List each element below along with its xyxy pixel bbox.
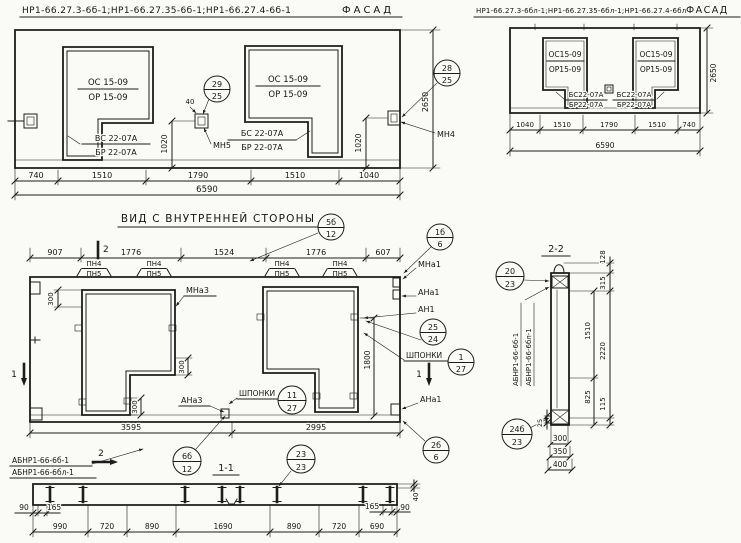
svg-text:27: 27	[456, 365, 466, 374]
window-opening-left	[82, 290, 175, 415]
dim-label: 990	[53, 522, 68, 531]
dim-label: 2650	[709, 63, 718, 82]
svg-text:ПН4: ПН4	[87, 260, 103, 268]
facade-left-view-label: ФАСАД	[342, 5, 394, 16]
anchor-label: МН4	[437, 130, 455, 139]
svg-text:5б: 5б	[326, 218, 336, 227]
svg-text:27: 27	[287, 404, 297, 413]
dim-label: 1040	[359, 171, 379, 180]
svg-text:2б: 2б	[431, 441, 441, 450]
dim-label: 128	[599, 250, 607, 263]
panel-cross-section	[33, 484, 397, 505]
sill-mark: БР22-07А	[617, 101, 651, 109]
dim-label: 315	[599, 276, 607, 289]
window-mark: ОР15-09	[640, 65, 672, 74]
svg-text:25: 25	[442, 76, 452, 85]
dim-label: 1510	[584, 322, 592, 340]
dim-label: 907	[47, 248, 62, 257]
dim-label: 890	[145, 522, 160, 531]
facade-right-title: НР1-66.27.3-6бл-1;НР1-66.27.35-6бл-1;НР1…	[476, 7, 694, 15]
anchor-plate-mid	[195, 114, 208, 128]
dim-label: 165	[47, 503, 62, 512]
dim-label: 720	[100, 522, 115, 531]
dim-label: 890	[287, 522, 302, 531]
callout-balloon: 1 27	[448, 349, 474, 375]
window-opening-left	[63, 47, 153, 160]
window-mark: ОР 15-09	[268, 90, 307, 100]
item-label: АБНР1-66-6бл-1	[12, 468, 74, 477]
dim-label: 90	[400, 503, 410, 512]
dim-label: 1510	[92, 171, 112, 180]
svg-text:ПН4: ПН4	[275, 260, 291, 268]
svg-text:6б: 6б	[182, 452, 192, 461]
callout-balloon: 25 24	[366, 319, 446, 345]
svg-text:23: 23	[512, 438, 522, 447]
dim-total-label: 6590	[196, 185, 218, 195]
dim-label: 90	[19, 503, 29, 512]
svg-text:20: 20	[505, 267, 515, 276]
dim-label: 300	[47, 292, 55, 305]
dim-label: 740	[28, 171, 43, 180]
svg-text:1: 1	[458, 353, 463, 362]
svg-text:2: 2	[98, 449, 104, 459]
dim-label: 300	[131, 400, 139, 413]
dim-label: 115	[599, 397, 607, 410]
anchor-plate-mid	[605, 85, 613, 93]
callout-balloon: 29 25	[203, 76, 230, 114]
anchor-label: МНа1	[418, 260, 441, 269]
window-mark: ОС15-09	[549, 50, 582, 59]
section-cut-mark-1-right: 1	[416, 364, 432, 386]
svg-text:1: 1	[416, 370, 422, 380]
dim-label: 25	[536, 419, 544, 427]
dim-label: 1800	[363, 350, 372, 369]
callout-balloon: 28 25	[402, 60, 460, 117]
drawing-sheet: НР1-66.27.3-6б-1;НР1-66.27.35-6б-1;НР1-6…	[0, 0, 741, 543]
section-2-2: 2-2 20 23 АБНР1-66-6б-1 АБНР1-66-6бл-1 2…	[496, 244, 614, 473]
anchor-label: МН5	[213, 141, 231, 150]
inner-side-view: ВИД С ВНУТРЕННЕЙ СТОРОНЫ 5б 12 1б 6 907 …	[11, 212, 474, 465]
lifting-loop	[554, 265, 564, 273]
callout-balloon: 6б 12	[173, 416, 225, 475]
dim-label: 400	[553, 460, 568, 469]
svg-text:1б: 1б	[435, 228, 445, 237]
dim-label: 1690	[213, 522, 232, 531]
svg-text:28: 28	[442, 64, 452, 73]
svg-text:ПН4: ПН4	[333, 260, 349, 268]
dim-label: 2220	[599, 342, 607, 360]
drawing-canvas: НР1-66.27.3-6б-1;НР1-66.27.35-6б-1;НР1-6…	[0, 0, 741, 543]
svg-text:6: 6	[433, 453, 438, 462]
section-title: 1-1	[218, 463, 234, 474]
dim-label: 740	[682, 121, 695, 129]
lintel-marks: ПН4 ПН5 ПН4 ПН5 ПН4 ПН5 ПН4 ПН5	[77, 260, 357, 278]
section-cut-mark-1-left: 1	[11, 364, 27, 386]
svg-text:25: 25	[212, 92, 222, 101]
dim-label: 825	[584, 390, 592, 403]
window-mark: ОС 15-09	[268, 75, 308, 85]
sill-mark: БС22-07А	[617, 91, 652, 99]
dim-label: 1790	[600, 121, 618, 129]
anchor-label: МНа3	[186, 286, 209, 295]
window-mark: ОР 15-09	[88, 93, 127, 103]
dim-label: 1776	[121, 248, 141, 257]
dim-label: 1510	[553, 121, 571, 129]
svg-text:23: 23	[296, 450, 306, 459]
svg-text:11: 11	[287, 391, 297, 400]
anchor-label: АНа1	[420, 395, 441, 404]
svg-text:12: 12	[182, 465, 192, 474]
callout-balloon: 2б 6	[403, 421, 449, 463]
dim-label: 690	[370, 522, 385, 531]
dim-label: 607	[375, 248, 390, 257]
facade-left-view: НР1-66.27.3-6б-1;НР1-66.27.35-6б-1;НР1-6…	[8, 5, 460, 200]
dim-label: 40	[186, 98, 195, 106]
window-mark: ОС15-09	[640, 50, 673, 59]
panel-vertical-section	[546, 265, 569, 425]
section-1-1: АБНР1-66-6б-1 АБНР1-66-6бл-1 6б 12 1-1 2…	[10, 416, 420, 537]
dim-label: 3595	[121, 423, 141, 432]
dim-label: 1524	[214, 248, 234, 257]
inner-view-title: ВИД С ВНУТРЕННЕЙ СТОРОНЫ	[121, 212, 315, 225]
callout-balloon: 23 23	[279, 445, 315, 486]
sill-mark: БС 22-07А	[241, 129, 284, 138]
svg-text:23: 23	[296, 463, 306, 472]
dim-label: 2650	[421, 92, 430, 112]
facade-right-view: НР1-66.27.3-6бл-1;НР1-66.27.35-6бл-1;НР1…	[474, 5, 740, 156]
svg-text:23: 23	[505, 280, 515, 289]
anchor-label: АН1	[418, 305, 435, 314]
sill-mark: БР 22-07А	[241, 143, 283, 152]
dim-label: 1510	[648, 121, 666, 129]
dim-label: 1040	[516, 121, 534, 129]
anchor-plate-left-edge	[8, 114, 37, 128]
svg-text:24: 24	[428, 335, 438, 344]
anchor-label: АНа3	[181, 396, 202, 405]
dim-label: 1020	[354, 133, 363, 152]
svg-text:2: 2	[103, 245, 109, 255]
svg-text:6: 6	[437, 240, 442, 249]
section-cut-mark-2-top: 2	[98, 242, 109, 258]
svg-text:12: 12	[326, 230, 336, 239]
dim-label: 40	[412, 493, 420, 502]
callout-balloon: 20 23	[496, 262, 549, 290]
svg-text:ПН4: ПН4	[147, 260, 163, 268]
keys-label: ШПОНКИ	[239, 389, 275, 398]
svg-text:25: 25	[428, 323, 438, 332]
anchor-plate-right-edge	[388, 111, 400, 125]
sill-mark: БР 22-07А	[95, 148, 137, 157]
window-mark: ОС 15-09	[88, 78, 128, 88]
item-label: АБНР1-66-6бл-1	[525, 328, 533, 386]
item-label: АБНР1-66-6б-1	[12, 456, 69, 465]
facade-left-title: НР1-66.27.3-6б-1;НР1-66.27.35-6б-1;НР1-6…	[22, 6, 291, 16]
dim-label: 1510	[285, 171, 305, 180]
keys-label: ШПОНКИ	[406, 351, 442, 360]
facade-right-view-label: ФАСАД	[686, 5, 729, 16]
section-title: 2-2	[548, 244, 564, 255]
callout-balloon: 11 27	[278, 386, 306, 414]
dim-label: 165	[365, 502, 380, 511]
dim-label: 1776	[306, 248, 326, 257]
svg-text:1: 1	[11, 370, 17, 380]
dim-label: 2995	[306, 423, 326, 432]
dim-label: 300	[553, 434, 568, 443]
dim-label: 300	[178, 360, 186, 373]
dim-label: 720	[332, 522, 347, 531]
dim-label: 1790	[188, 171, 208, 180]
dimension-lines	[27, 422, 403, 438]
sill-mark: БР22-07А	[569, 101, 603, 109]
dim-label: 1020	[160, 134, 169, 153]
svg-text:24б: 24б	[509, 425, 524, 434]
item-label: АБНР1-66-6б-1	[512, 333, 520, 386]
sill-mark: БС22-07А	[569, 91, 604, 99]
svg-text:29: 29	[212, 80, 222, 89]
window-mark: ОР15-09	[549, 65, 581, 74]
dimension-lines	[507, 25, 713, 156]
dim-label: 350	[553, 447, 568, 456]
dim-total-label: 6590	[595, 141, 614, 150]
anchor-label: АНа1	[418, 288, 439, 297]
sill-mark: ВС 22-07А	[95, 134, 138, 143]
window-opening-right	[263, 287, 358, 412]
